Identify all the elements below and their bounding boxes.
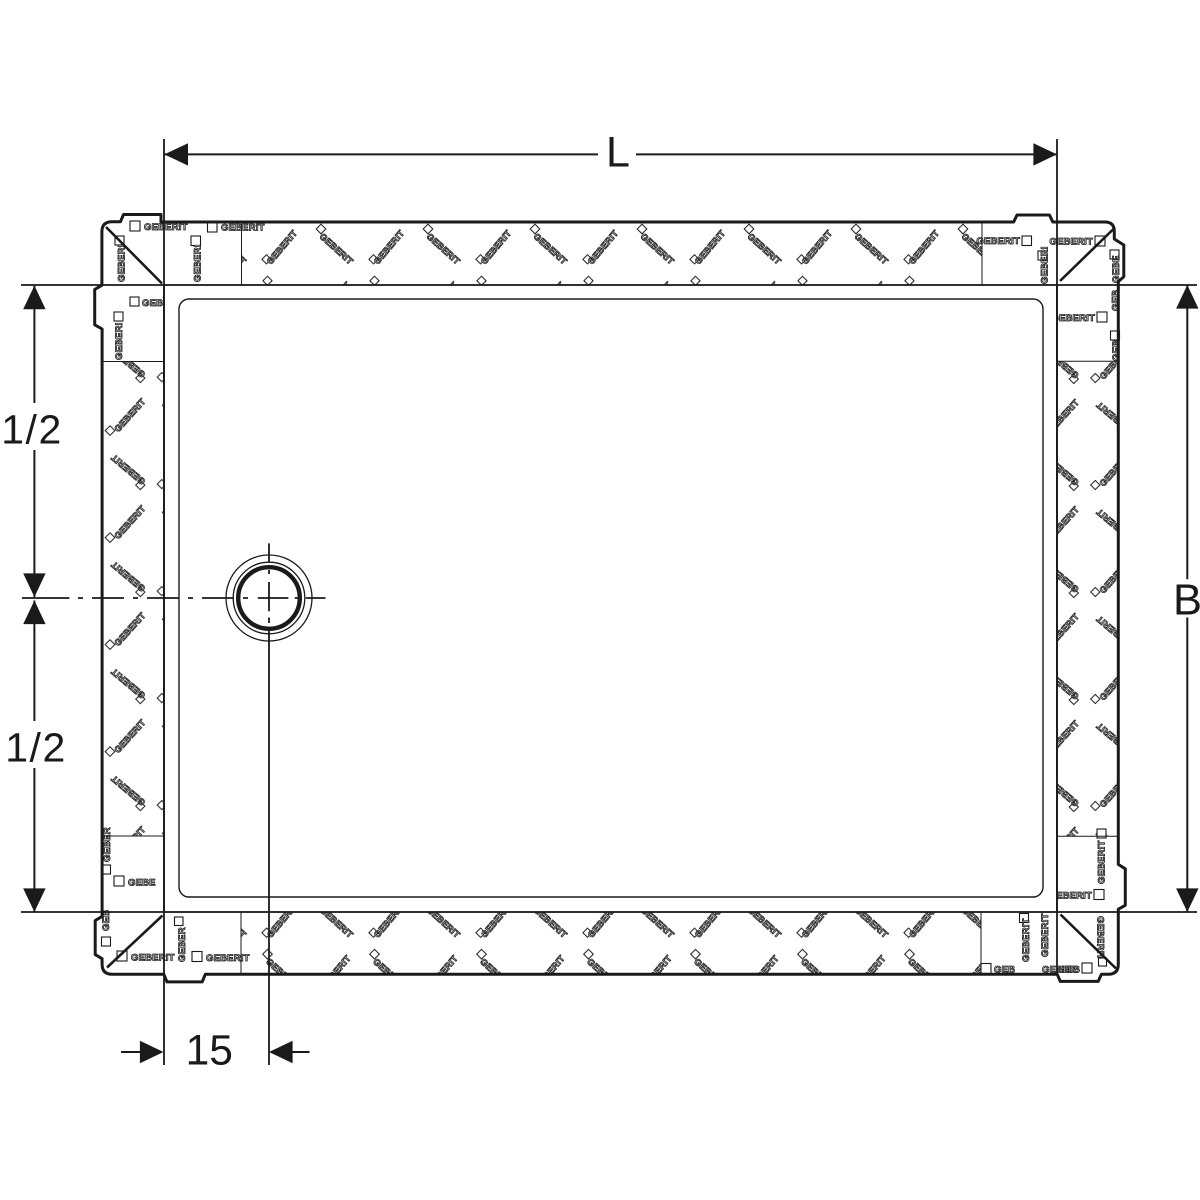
svg-text:GEBERIT: GEBERIT bbox=[1097, 840, 1108, 884]
svg-text:GEBER: GEBER bbox=[102, 827, 113, 862]
svg-text:B: B bbox=[1173, 577, 1200, 625]
svg-text:GEBER: GEBER bbox=[177, 927, 188, 962]
svg-text:15: 15 bbox=[186, 1028, 233, 1075]
svg-text:GEBERI: GEBERI bbox=[117, 244, 128, 282]
svg-text:1/2: 1/2 bbox=[5, 725, 67, 771]
svg-text:GEBERIT: GEBERIT bbox=[1051, 313, 1095, 324]
svg-text:GEBERIT: GEBERIT bbox=[1049, 237, 1093, 248]
svg-text:GEBERIT: GEBERIT bbox=[1021, 918, 1032, 962]
svg-text:GEBERI: GEBERI bbox=[114, 322, 125, 360]
svg-text:GEBERIT: GEBERIT bbox=[221, 223, 265, 234]
svg-text:GEBE: GEBE bbox=[128, 878, 156, 889]
svg-text:GEBERI: GEBERI bbox=[193, 244, 204, 282]
svg-text:1/2: 1/2 bbox=[1, 407, 63, 453]
svg-text:GEBERIT: GEBERIT bbox=[144, 222, 188, 233]
svg-text:L: L bbox=[606, 128, 630, 176]
svg-text:GEB: GEB bbox=[1111, 290, 1122, 311]
svg-text:GEBERI: GEBERI bbox=[1040, 246, 1051, 284]
svg-text:GEBERIT: GEBERIT bbox=[976, 236, 1020, 247]
svg-text:GEBERIT: GEBERIT bbox=[131, 953, 175, 964]
svg-text:GEB: GEB bbox=[1111, 340, 1122, 361]
svg-text:GEBERIT: GEBERIT bbox=[206, 953, 250, 964]
svg-text:GEBERIT: GEBERIT bbox=[1040, 913, 1051, 957]
